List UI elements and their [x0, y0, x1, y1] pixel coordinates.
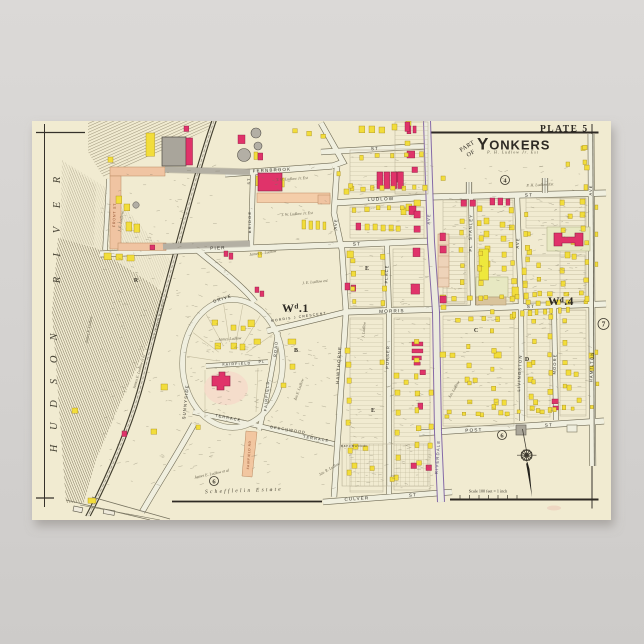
svg-text:MORRIS: MORRIS — [379, 308, 405, 314]
svg-text:PL: PL — [258, 360, 265, 364]
svg-text:POST: POST — [465, 427, 483, 433]
svg-text:BEECHWOOD: BEECHWOOD — [341, 444, 367, 448]
svg-text:ST: ST — [409, 492, 417, 498]
svg-text:S: S — [49, 378, 60, 384]
svg-text:E: E — [371, 408, 375, 414]
svg-text:I: I — [52, 253, 63, 258]
svg-text:ST: ST — [545, 422, 554, 427]
svg-text:C: C — [474, 328, 478, 334]
svg-text:ST: ST — [247, 178, 251, 185]
svg-text:MOORE: MOORE — [552, 353, 558, 374]
svg-text:B: B — [294, 348, 298, 354]
svg-text:LUDLOW: LUDLOW — [367, 196, 394, 202]
svg-text:PLACE: PLACE — [384, 264, 390, 283]
svg-text:ST: ST — [527, 304, 535, 309]
svg-text:ST: ST — [371, 146, 379, 151]
svg-text:PIER: PIER — [210, 245, 226, 251]
svg-text:Wᵈ.1: Wᵈ.1 — [282, 301, 309, 315]
svg-text:7: 7 — [602, 320, 606, 329]
svg-text:E: E — [365, 266, 369, 272]
svg-text:PURSER: PURSER — [385, 345, 391, 369]
svg-text:AVE: AVE — [333, 218, 339, 230]
svg-text:N: N — [49, 333, 60, 342]
svg-text:H: H — [49, 443, 60, 453]
svg-text:D: D — [49, 400, 60, 409]
svg-text:PL: PL — [469, 244, 473, 251]
svg-text:ST: ST — [353, 241, 361, 246]
svg-text:STANLEY: STANLEY — [468, 214, 474, 241]
svg-text:AVE: AVE — [426, 213, 432, 225]
svg-text:Scale 100 feet = 1 inch: Scale 100 feet = 1 inch — [469, 489, 508, 494]
svg-text:R: R — [52, 176, 63, 184]
svg-text:E: E — [52, 201, 63, 209]
svg-text:D: D — [525, 357, 530, 363]
svg-text:AVE: AVE — [589, 184, 593, 195]
svg-text:ST: ST — [525, 192, 533, 197]
svg-text:R: R — [52, 276, 63, 284]
svg-text:R: R — [134, 278, 139, 284]
svg-text:YONKERS: YONKERS — [477, 135, 550, 154]
svg-text:FRONT ST: FRONT ST — [112, 203, 117, 227]
svg-text:AVE: AVE — [515, 237, 521, 249]
svg-text:O: O — [49, 355, 60, 363]
svg-text:Wᵈ.4: Wᵈ.4 — [548, 296, 574, 308]
svg-text:BRIDGE: BRIDGE — [247, 211, 252, 234]
svg-text:PLATE 5: PLATE 5 — [540, 125, 589, 135]
